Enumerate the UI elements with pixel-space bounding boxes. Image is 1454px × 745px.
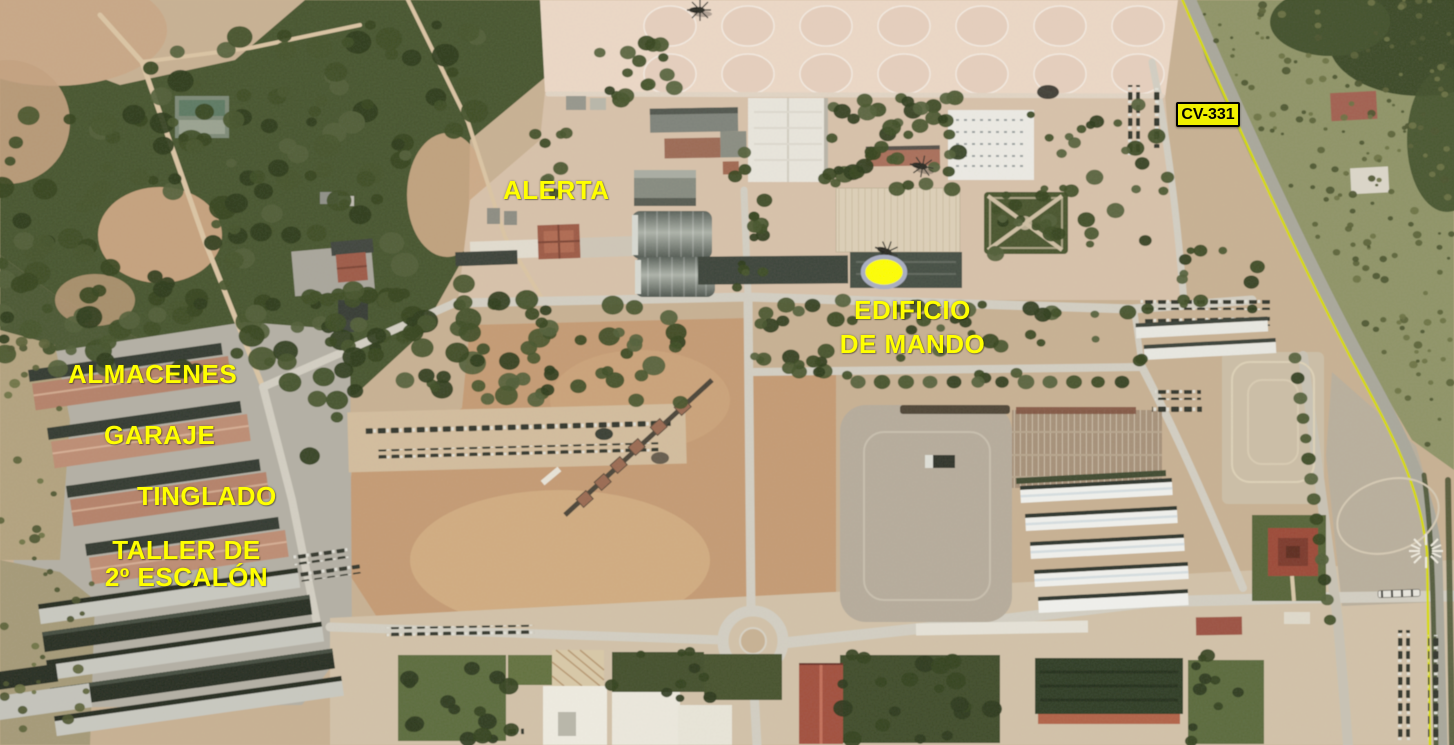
- label-edificio-line1: EDIFICIO: [810, 293, 1015, 327]
- satellite-map-image: ALERTA EDIFICIO DE MANDO ALMACENES GARAJ…: [0, 0, 1454, 745]
- road-badge-cv331: CV-331: [1176, 102, 1240, 127]
- label-garaje: GARAJE: [104, 422, 215, 449]
- label-tinglado: TINGLADO: [137, 483, 277, 510]
- label-alerta: ALERTA: [503, 177, 610, 204]
- label-taller-segundo-escalon: TALLER DE 2º ESCALÓN: [84, 537, 289, 591]
- label-edificio-line2: DE MANDO: [810, 327, 1015, 361]
- label-edificio-de-mando: EDIFICIO DE MANDO: [810, 293, 1015, 361]
- label-taller-line1: TALLER DE: [84, 537, 289, 564]
- label-almacenes: ALMACENES: [68, 361, 237, 388]
- label-taller-line2: 2º ESCALÓN: [84, 564, 289, 591]
